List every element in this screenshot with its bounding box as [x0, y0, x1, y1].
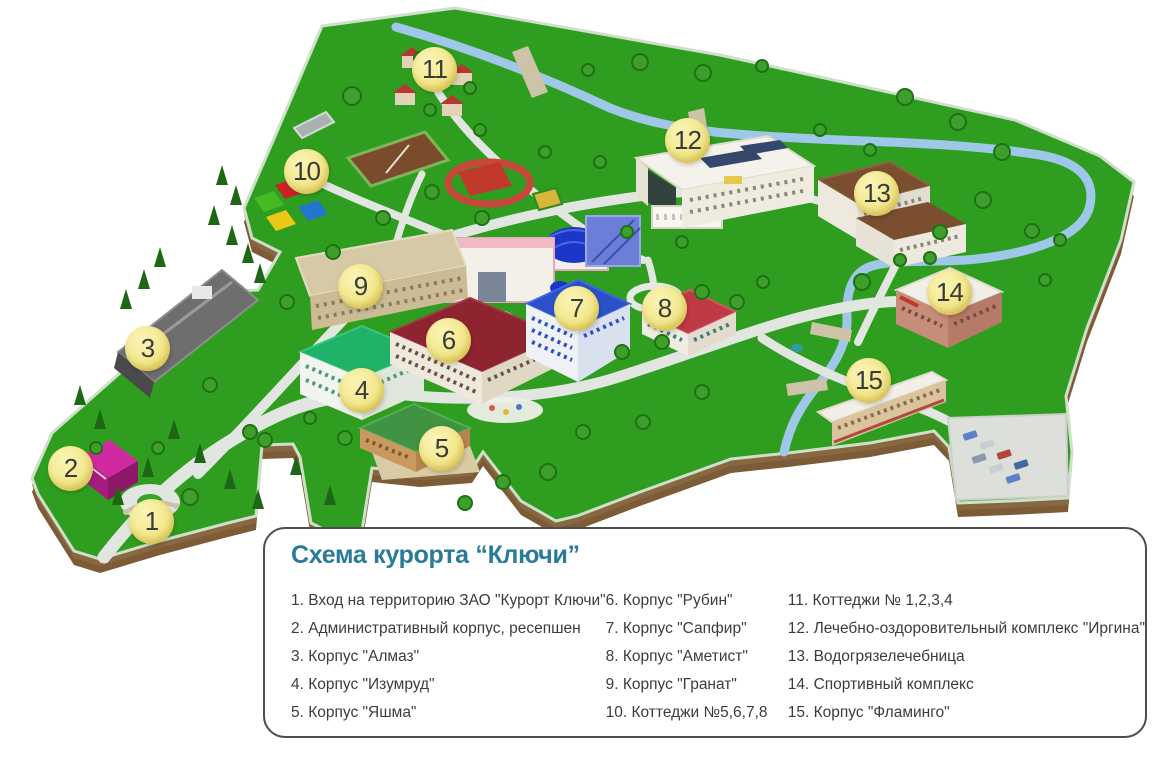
- parking-lot: [948, 414, 1068, 500]
- legend-item-3: 3. Корпус "Алмаз": [291, 643, 606, 671]
- legend-column-3: 11. Коттеджи № 1,2,3,412. Лечебно-оздоро…: [788, 587, 1145, 727]
- legend-panel: Схема курорта “Ключи” 1. Вход на террито…: [263, 527, 1147, 738]
- legend-columns: 1. Вход на территорию ЗАО "Курорт Ключи"…: [291, 587, 1145, 727]
- legend-title: Схема курорта “Ключи”: [291, 541, 1145, 570]
- stadium: [448, 162, 530, 204]
- legend-item-6: 6. Корпус "Рубин": [606, 587, 788, 615]
- legend-item-15: 15. Корпус "Фламинго": [788, 699, 1145, 727]
- legend-item-10: 10. Коттеджи №5,6,7,8: [606, 699, 788, 727]
- legend-item-5: 5. Корпус "Яшма": [291, 699, 606, 727]
- legend-item-12: 12. Лечебно-оздоровительный комплекс "Ир…: [788, 615, 1145, 643]
- legend-item-13: 13. Водогрязелечебница: [788, 643, 1145, 671]
- legend-item-14: 14. Спортивный комплекс: [788, 671, 1145, 699]
- legend-column-1: 1. Вход на территорию ЗАО "Курорт Ключи"…: [291, 587, 606, 727]
- legend-item-2: 2. Административный корпус, ресепшен: [291, 615, 606, 643]
- entrance-area: [120, 484, 180, 520]
- legend-item-8: 8. Корпус "Аметист": [606, 643, 788, 671]
- legend-item-1: 1. Вход на территорию ЗАО "Курорт Ключи": [291, 587, 606, 615]
- legend-item-11: 11. Коттеджи № 1,2,3,4: [788, 587, 1145, 615]
- legend-item-7: 7. Корпус "Сапфир": [606, 615, 788, 643]
- legend-item-9: 9. Корпус "Гранат": [606, 671, 788, 699]
- resort-map-screenshot: 123456789101112131415 Схема курорта “Клю…: [0, 0, 1153, 767]
- legend-column-2: 6. Корпус "Рубин"7. Корпус "Сапфир"8. Ко…: [606, 587, 788, 727]
- legend-item-4: 4. Корпус "Изумруд": [291, 671, 606, 699]
